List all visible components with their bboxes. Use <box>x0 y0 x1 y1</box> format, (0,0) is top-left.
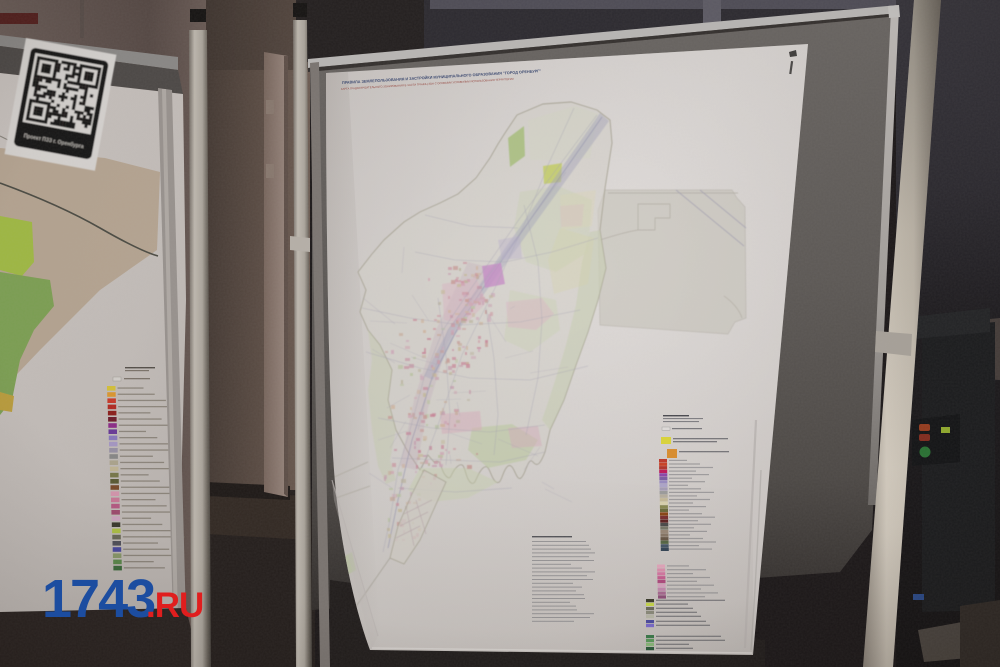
svg-text:1743: 1743 <box>42 569 155 629</box>
svg-text:.RU: .RU <box>146 586 203 625</box>
